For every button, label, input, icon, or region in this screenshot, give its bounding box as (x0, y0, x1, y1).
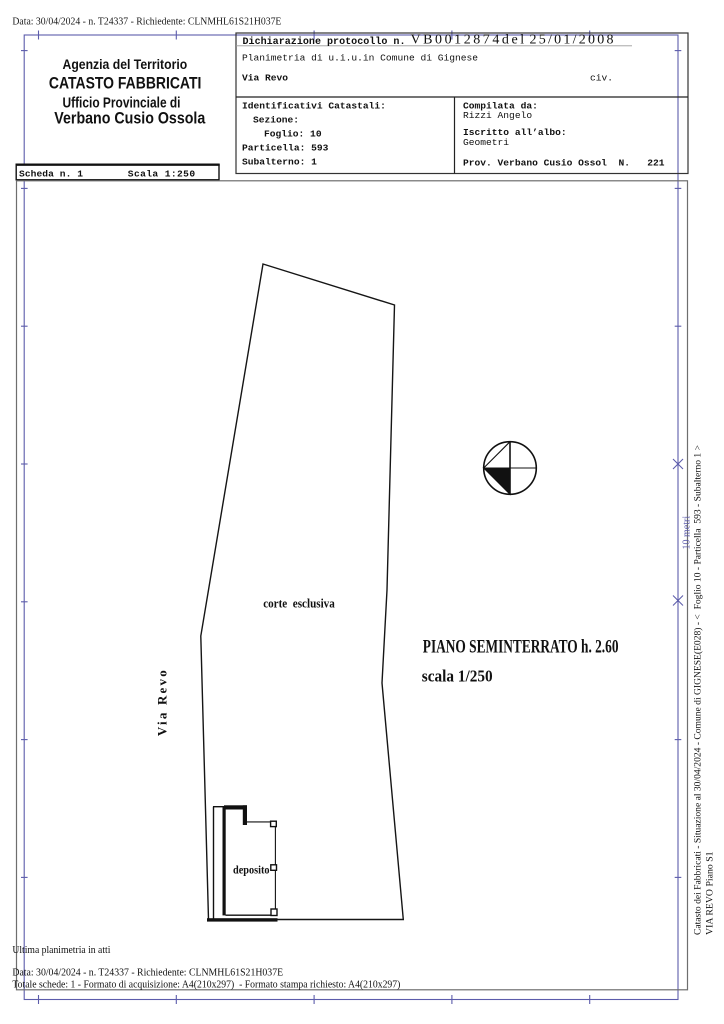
svg-text:scala 1/250: scala 1/250 (422, 667, 493, 686)
svg-text:Subalterno: 1: Subalterno: 1 (242, 157, 317, 168)
svg-text:Particella: 593: Particella: 593 (242, 143, 329, 154)
svg-text:deposito: deposito (233, 862, 270, 876)
svg-text:VIA REVO Piano S1: VIA REVO Piano S1 (705, 851, 716, 935)
svg-text:Foglio: 10: Foglio: 10 (264, 129, 322, 140)
svg-text:corte esclusiva: corte esclusiva (263, 596, 335, 611)
svg-text:Dichiarazione protocollo n.: Dichiarazione protocollo n. (243, 36, 406, 48)
svg-text:Scheda n. 1: Scheda n. 1 (19, 168, 83, 179)
svg-text:Ultima planimetria in atti: Ultima planimetria in atti (12, 944, 110, 956)
svg-text:Sezione:: Sezione: (253, 115, 299, 126)
svg-text:Via Revo: Via Revo (155, 668, 170, 736)
svg-text:civ.: civ. (590, 73, 613, 84)
svg-text:Scala 1:250: Scala 1:250 (128, 168, 196, 179)
svg-text:Planimetria di u.i.u.in Comune: Planimetria di u.i.u.in Comune di Gignes… (242, 53, 478, 64)
svg-text:VB0012874del: VB0012874del (411, 33, 527, 48)
svg-text:Data: 30/04/2024 - n. T24337 -: Data: 30/04/2024 - n. T24337 - Richieden… (12, 16, 281, 28)
svg-text:Prov. Verbano Cusio Ossol N.: Prov. Verbano Cusio Ossol N. 221 (463, 158, 665, 169)
svg-text:Via Revo: Via Revo (242, 73, 288, 84)
svg-text:Data: 30/04/2024 - n. T24337 -: Data: 30/04/2024 - n. T24337 - Richieden… (12, 966, 283, 978)
svg-text:Identificativi Catastali:: Identificativi Catastali: (242, 101, 386, 112)
svg-text:PIANO SEMINTERRATO h. 2.60: PIANO SEMINTERRATO h. 2.60 (423, 637, 619, 658)
svg-text:25/01/2008: 25/01/2008 (530, 33, 616, 48)
svg-text:Rizzi Angelo: Rizzi Angelo (463, 110, 532, 121)
svg-text:10 metri: 10 metri (682, 516, 693, 550)
svg-text:Agenzia del Territorio: Agenzia del Territorio (63, 56, 188, 72)
svg-text:Verbano Cusio Ossola: Verbano Cusio Ossola (54, 110, 206, 128)
svg-text:Totale schede: 1 - Formato di: Totale schede: 1 - Formato di acquisizio… (12, 980, 400, 991)
svg-text:Catasto dei Fabbricati - Situa: Catasto dei Fabbricati - Situazione al 3… (693, 445, 704, 935)
svg-text:CATASTO FABBRICATI: CATASTO FABBRICATI (49, 75, 202, 93)
svg-text:Geometri: Geometri (463, 137, 509, 148)
